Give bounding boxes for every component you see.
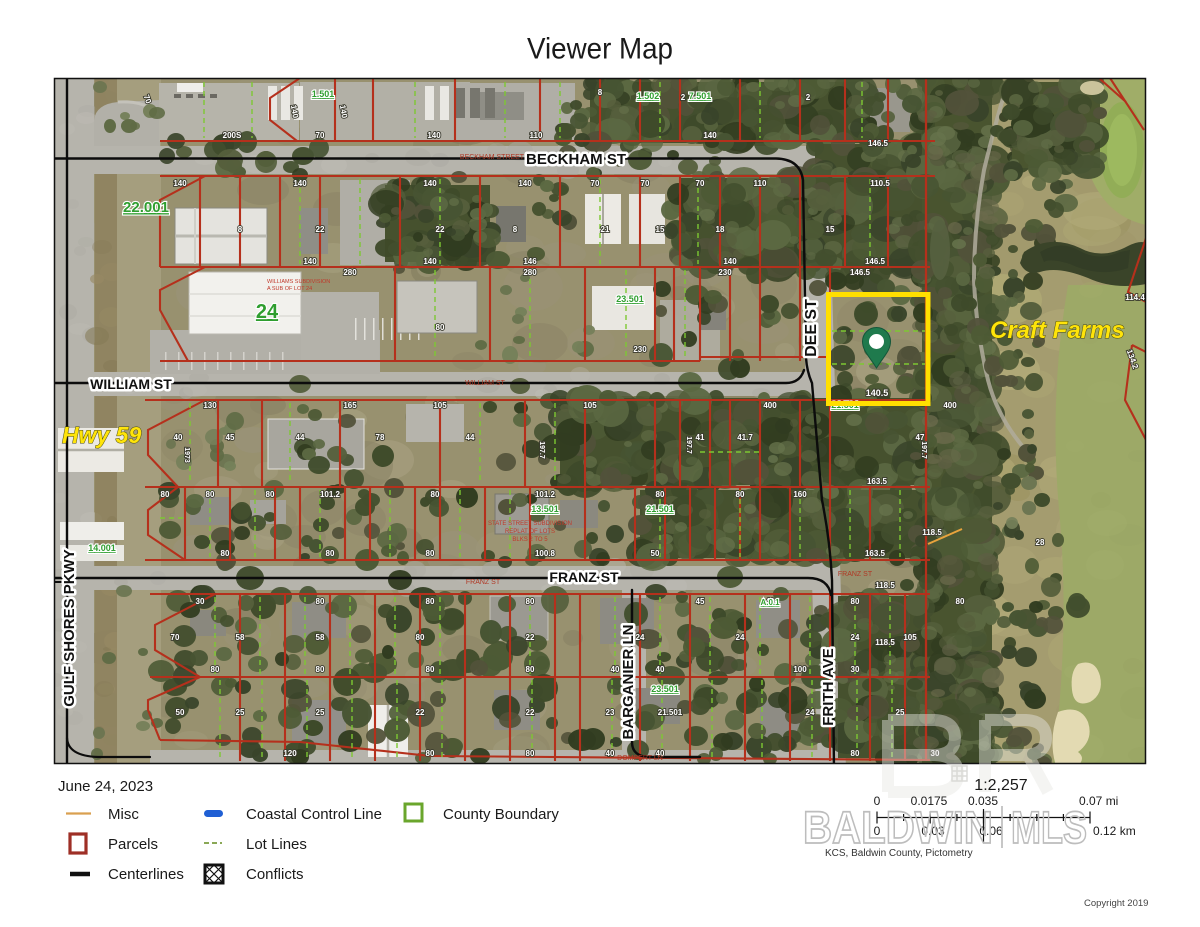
svg-text:18: 18 [716,225,725,234]
svg-text:Copyright 2019: Copyright 2019 [1084,898,1148,909]
svg-text:Parcels: Parcels [108,836,158,853]
svg-text:80: 80 [426,549,435,558]
svg-text:50: 50 [651,549,660,558]
svg-text:DOMPERT LN: DOMPERT LN [617,755,663,762]
svg-text:80: 80 [851,597,860,606]
svg-text:21: 21 [601,225,610,234]
svg-text:118.5: 118.5 [875,638,895,647]
svg-text:7.501: 7.501 [689,91,712,101]
svg-text:140: 140 [703,131,717,140]
svg-text:101.2: 101.2 [535,490,556,499]
svg-text:140: 140 [723,257,737,266]
svg-text:45: 45 [226,433,235,442]
svg-text:80: 80 [221,549,230,558]
svg-text:80: 80 [956,597,965,606]
svg-text:22: 22 [436,225,445,234]
svg-text:110: 110 [754,179,767,188]
svg-text:80: 80 [736,490,745,499]
svg-text:BALDWIN: BALDWIN [803,802,993,853]
svg-text:146.5: 146.5 [850,268,871,277]
svg-text:80: 80 [426,597,435,606]
svg-text:A SUB OF LOT 24: A SUB OF LOT 24 [267,286,312,292]
svg-text:105: 105 [903,633,917,642]
svg-text:Lot Lines: Lot Lines [246,836,307,853]
svg-text:Conflicts: Conflicts [246,866,304,883]
svg-text:40: 40 [174,433,183,442]
svg-text:8: 8 [238,225,243,234]
svg-text:280: 280 [523,268,537,277]
svg-text:160: 160 [793,490,807,499]
svg-text:163.5: 163.5 [867,477,888,486]
svg-text:165: 165 [343,401,357,410]
svg-text:118.5: 118.5 [922,528,942,537]
svg-text:BLKS 2 TO 5: BLKS 2 TO 5 [512,537,548,543]
svg-text:23.501: 23.501 [616,294,644,304]
svg-text:101.2: 101.2 [320,490,341,499]
svg-text:1.502: 1.502 [637,91,660,101]
svg-text:105: 105 [583,401,597,410]
svg-text:80: 80 [526,665,535,674]
svg-text:GULF SHORES PKWY: GULF SHORES PKWY [61,549,78,707]
svg-text:24: 24 [806,708,815,717]
svg-text:40: 40 [611,665,620,674]
svg-text:197.7: 197.7 [920,441,927,459]
svg-text:58: 58 [236,633,245,642]
svg-text:197.7: 197.7 [685,436,692,454]
svg-text:40: 40 [606,749,615,758]
svg-text:30: 30 [851,665,860,674]
svg-text:80: 80 [526,749,535,758]
svg-text:DEE ST: DEE ST [803,299,820,357]
svg-text:Craft Farms: Craft Farms [990,317,1125,344]
svg-text:70: 70 [171,633,180,642]
svg-text:13.501: 13.501 [531,504,559,514]
svg-text:0.12 km: 0.12 km [1093,824,1136,838]
svg-text:58: 58 [316,633,325,642]
svg-text:23.501: 23.501 [651,684,679,694]
svg-text:140: 140 [293,179,307,188]
svg-text:118.5: 118.5 [875,581,895,590]
svg-text:Centerlines: Centerlines [108,866,184,883]
svg-text:400: 400 [943,401,957,410]
svg-text:230: 230 [633,345,647,354]
svg-text:24: 24 [256,301,279,323]
svg-text:80: 80 [436,323,445,332]
svg-text:140: 140 [518,179,532,188]
svg-text:June 24, 2023: June 24, 2023 [58,778,153,795]
svg-text:1.501: 1.501 [312,89,335,99]
svg-text:80: 80 [316,597,325,606]
svg-text:8: 8 [598,88,603,97]
svg-text:140: 140 [427,131,441,140]
svg-text:WILLIAMS SUBDIVISION: WILLIAMS SUBDIVISION [267,279,330,285]
svg-text:41.7: 41.7 [737,433,753,442]
svg-text:146.5: 146.5 [865,257,886,266]
svg-text:50: 50 [176,708,185,717]
svg-text:80: 80 [316,665,325,674]
svg-text:140: 140 [423,179,437,188]
svg-text:140.5: 140.5 [866,388,889,398]
svg-text:22: 22 [316,225,325,234]
svg-text:24: 24 [736,633,745,642]
svg-text:Viewer Map: Viewer Map [527,33,673,66]
svg-text:2: 2 [806,93,811,102]
svg-text:130: 130 [203,401,217,410]
svg-text:FRITH AVE: FRITH AVE [820,648,837,726]
svg-text:70: 70 [591,179,600,188]
svg-text:45: 45 [696,597,705,606]
svg-text:110: 110 [530,131,543,140]
svg-text:105: 105 [433,401,447,410]
svg-text:230: 230 [718,268,732,277]
svg-text:40: 40 [656,665,665,674]
svg-text:Coastal Control Line: Coastal Control Line [246,806,382,823]
svg-text:22: 22 [526,708,535,717]
svg-text:70: 70 [316,131,325,140]
svg-text:FRANZ ST: FRANZ ST [549,569,619,585]
svg-text:BECKHAM ST: BECKHAM ST [526,151,626,168]
svg-text:County Boundary: County Boundary [443,806,559,823]
svg-text:15: 15 [826,225,835,234]
svg-text:23: 23 [606,708,615,717]
svg-text:140: 140 [303,257,317,266]
svg-text:30: 30 [196,597,205,606]
svg-text:2: 2 [681,93,686,102]
svg-text:44: 44 [466,433,475,442]
svg-text:A.0.1: A.0.1 [760,598,780,607]
svg-text:70: 70 [641,179,650,188]
svg-text:21.501: 21.501 [646,504,674,514]
svg-text:163.5: 163.5 [865,549,886,558]
svg-text:BECKHAM STREET: BECKHAM STREET [460,154,525,161]
svg-text:80: 80 [266,490,275,499]
svg-text:22.001: 22.001 [123,199,169,216]
svg-text:21.501: 21.501 [658,708,683,717]
svg-text:78: 78 [376,433,385,442]
svg-text:80: 80 [851,749,860,758]
svg-text:Misc: Misc [108,806,139,823]
svg-text:44: 44 [296,433,305,442]
svg-text:146: 146 [523,257,537,266]
svg-text:80: 80 [416,633,425,642]
svg-text:80: 80 [426,665,435,674]
svg-text:197.7: 197.7 [538,441,545,459]
svg-text:146.5: 146.5 [868,139,889,148]
svg-text:FRANZ ST: FRANZ ST [466,579,501,586]
svg-text:BARGANIER LN: BARGANIER LN [620,625,637,740]
svg-text:25: 25 [236,708,245,717]
svg-text:110.5: 110.5 [870,179,890,188]
svg-text:41: 41 [696,433,705,442]
svg-text:15: 15 [656,225,665,234]
svg-text:140: 140 [423,257,437,266]
svg-text:100.8: 100.8 [535,549,556,558]
svg-text:REPLAT OF LOTS: REPLAT OF LOTS [505,529,555,535]
svg-text:80: 80 [211,665,220,674]
svg-text:25: 25 [316,708,325,717]
svg-text:80: 80 [426,749,435,758]
svg-text:200S: 200S [223,131,242,140]
svg-text:100: 100 [793,665,807,674]
svg-text:80: 80 [326,549,335,558]
svg-text:80: 80 [206,490,215,499]
svg-text:80: 80 [431,490,440,499]
svg-text:70: 70 [696,179,705,188]
svg-text:114.4: 114.4 [1125,293,1145,302]
svg-text:22: 22 [526,633,535,642]
svg-text:22: 22 [416,708,425,717]
svg-text:STATE STREET SUBDIVISION: STATE STREET SUBDIVISION [488,521,572,527]
svg-text:FRANZ ST: FRANZ ST [838,571,873,578]
svg-text:80: 80 [526,597,535,606]
svg-text:80: 80 [656,490,665,499]
svg-text:14.001: 14.001 [88,543,116,553]
svg-text:280: 280 [343,268,357,277]
svg-text:24: 24 [851,633,860,642]
svg-text:400: 400 [763,401,777,410]
svg-text:1:2,257: 1:2,257 [974,777,1027,794]
svg-text:WILLIAM ST: WILLIAM ST [90,376,172,392]
svg-text:28: 28 [1036,538,1045,547]
svg-text:8: 8 [513,225,518,234]
svg-text:WILLIAM ST: WILLIAM ST [465,380,505,387]
svg-text:120: 120 [283,749,297,758]
svg-text:1973: 1973 [183,447,190,463]
svg-text:140: 140 [173,179,187,188]
svg-text:80: 80 [161,490,170,499]
svg-text:MLS: MLS [1011,802,1087,853]
svg-text:Hwy 59: Hwy 59 [62,422,141,448]
